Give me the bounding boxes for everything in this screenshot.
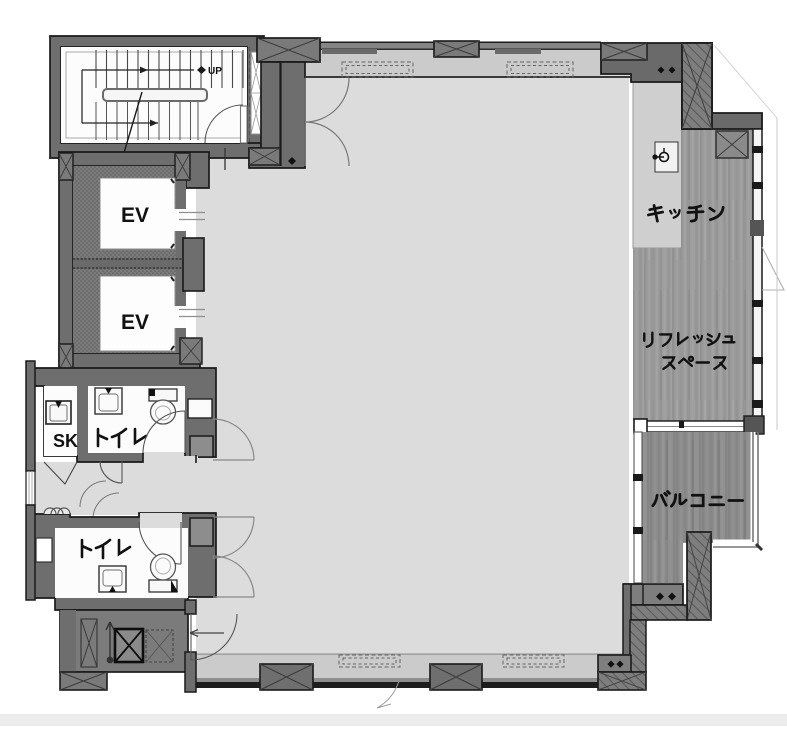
svg-text:SK: SK [53,431,78,451]
svg-text:EV: EV [121,311,149,334]
svg-text:EV: EV [121,204,149,227]
svg-text:UP: UP [208,66,222,77]
